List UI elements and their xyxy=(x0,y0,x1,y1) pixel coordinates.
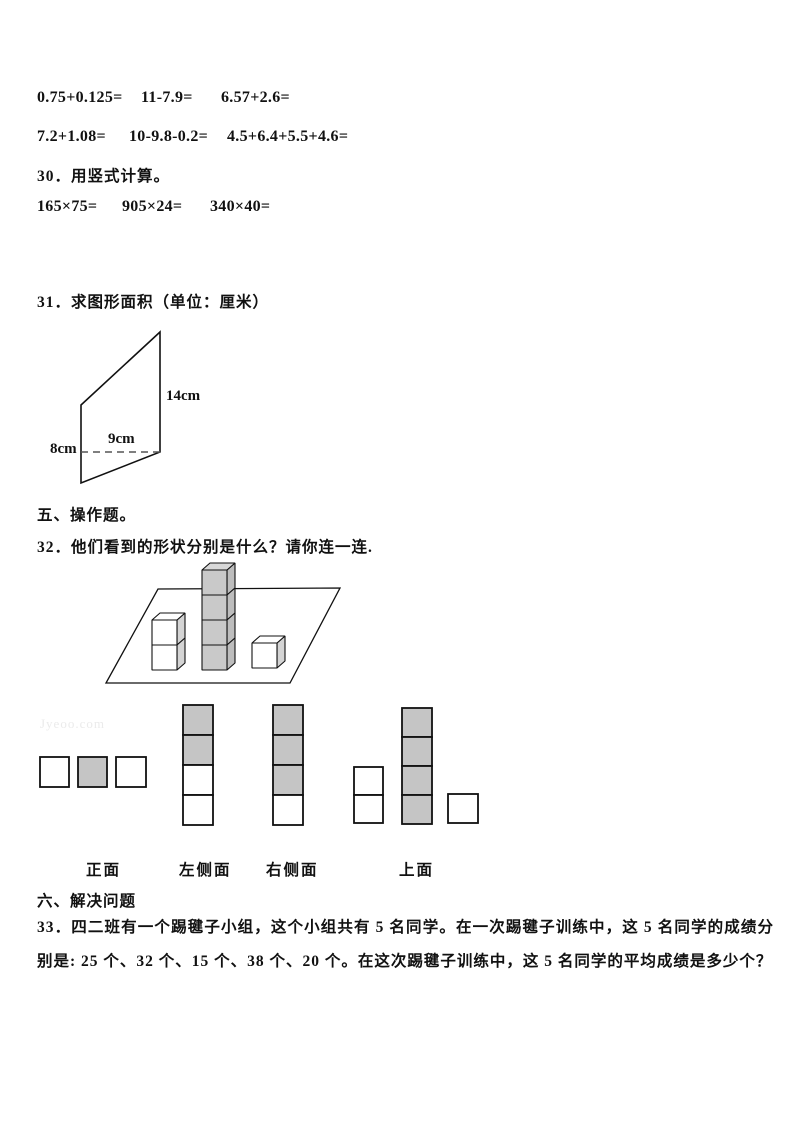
option-three-stacks-square xyxy=(448,794,478,823)
question-30-title: 30．用竖式计算。 xyxy=(37,164,170,186)
option-row-of-3-square xyxy=(116,757,146,787)
expression: 6.57+2.6= xyxy=(221,89,290,107)
option-column-gggw-square xyxy=(273,765,303,795)
expression: 4.5+6.4+5.5+4.6= xyxy=(227,128,348,146)
cube-scene-figure xyxy=(90,550,370,700)
option-three-stacks-square xyxy=(402,795,432,824)
white-cube-1 xyxy=(252,636,285,668)
expression: 165×75= xyxy=(37,198,97,216)
view-label-top: 上面 xyxy=(399,858,434,880)
option-column-gggw-square xyxy=(273,735,303,765)
expression: 0.75+0.125= xyxy=(37,89,123,107)
expression: 11-7.9= xyxy=(141,89,193,107)
watermark: Jyeoo.com xyxy=(40,716,105,732)
option-three-stacks-square xyxy=(402,766,432,795)
question-33-text: 33．四二班有一个踢毽子小组，这个小组共有 5 名同学。在一次踢毽子训练中，这 … xyxy=(37,911,774,979)
gray-stack-4 xyxy=(202,563,235,670)
view-label-front: 正面 xyxy=(86,858,121,880)
option-three-stacks-square xyxy=(354,795,383,823)
dimension-label-9cm: 9cm xyxy=(108,431,135,448)
area-figure xyxy=(35,325,235,500)
worksheet-page: 0.75+0.125= 11-7.9= 6.57+2.6= 7.2+1.08= … xyxy=(0,0,794,1123)
quadrilateral-shape xyxy=(81,332,160,483)
view-label-right-side: 右侧面 xyxy=(266,858,319,880)
expression: 7.2+1.08= xyxy=(37,128,106,146)
section-5-heading: 五、操作题。 xyxy=(37,503,136,525)
option-column-ggww-square xyxy=(183,765,213,795)
white-stack-2 xyxy=(152,613,185,670)
option-row-of-3-square xyxy=(78,757,107,787)
option-row-of-3-square xyxy=(40,757,69,787)
view-label-left-side: 左侧面 xyxy=(179,858,232,880)
question-31-title: 31．求图形面积（单位：厘米） xyxy=(37,290,269,312)
option-three-stacks-square xyxy=(402,708,432,737)
option-three-stacks-square xyxy=(354,767,383,795)
dimension-label-8cm: 8cm xyxy=(50,441,77,458)
option-column-ggww-square xyxy=(183,735,213,765)
dimension-label-14cm: 14cm xyxy=(166,388,200,405)
expression: 340×40= xyxy=(210,198,270,216)
option-column-ggww-square xyxy=(183,705,213,735)
option-column-gggw-square xyxy=(273,705,303,735)
expression: 10-9.8-0.2= xyxy=(129,128,208,146)
option-three-stacks-square xyxy=(402,737,432,766)
section-6-heading: 六、解决问题 xyxy=(37,889,136,911)
expression: 905×24= xyxy=(122,198,182,216)
option-column-ggww-square xyxy=(183,795,213,825)
option-column-gggw-square xyxy=(273,795,303,825)
